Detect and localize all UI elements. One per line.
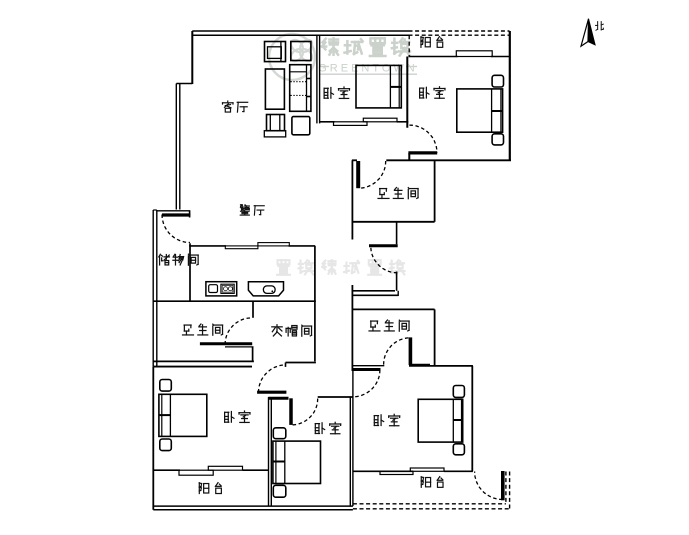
svg-text:GREENTOWN: GREENTOWN bbox=[318, 63, 418, 75]
